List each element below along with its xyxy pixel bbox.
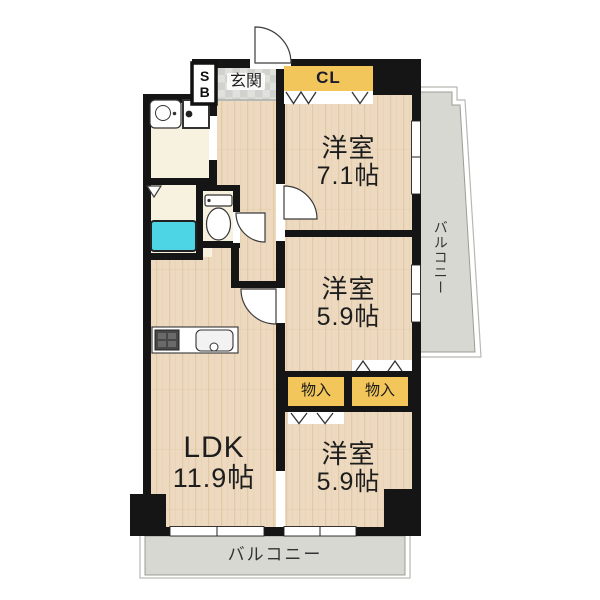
bathtub: [151, 221, 196, 251]
toilet-button: [207, 199, 210, 202]
kitchen-sink-drain: [210, 343, 218, 351]
room3-sliding-opening: [276, 471, 285, 527]
storage-right-box: [352, 377, 408, 406]
sink-faucet-dot: [173, 112, 177, 116]
exterior-cutout: [138, 38, 193, 94]
balcony-bottom: [140, 531, 410, 578]
storage-left-box: [288, 377, 344, 406]
shoe-box: [192, 63, 216, 104]
sink-basin: [156, 106, 171, 121]
washing-machine-drain: [186, 111, 193, 118]
floor-plan-stage: SB 玄関 CL 洋室 7.1帖 洋室 5.9帖 物入 物入 LDK 11.9帖…: [0, 0, 600, 600]
toilet-bowl: [207, 208, 231, 240]
entrance-door-arc: [255, 27, 291, 63]
closet-cl-box: [284, 66, 373, 91]
floor-plan-graphic: [0, 0, 600, 600]
balcony-right: [420, 87, 481, 357]
washroom-door-opening: [209, 116, 217, 160]
room2-door-opening: [276, 288, 285, 323]
